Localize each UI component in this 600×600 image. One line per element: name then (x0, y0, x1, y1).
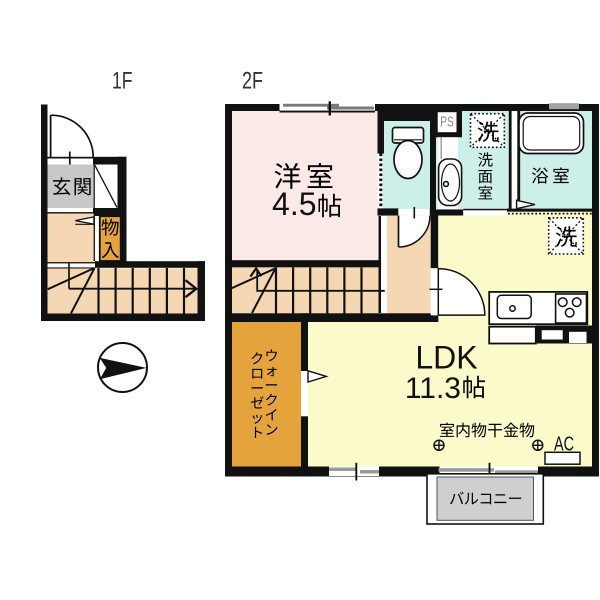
svg-text:11.3: 11.3 (405, 372, 461, 405)
svg-text:PS: PS (440, 113, 454, 130)
svg-text:2F: 2F (242, 68, 263, 95)
svg-text:4.5: 4.5 (272, 186, 316, 222)
svg-text:LDK: LDK (415, 340, 477, 376)
svg-text:1F: 1F (112, 68, 133, 95)
